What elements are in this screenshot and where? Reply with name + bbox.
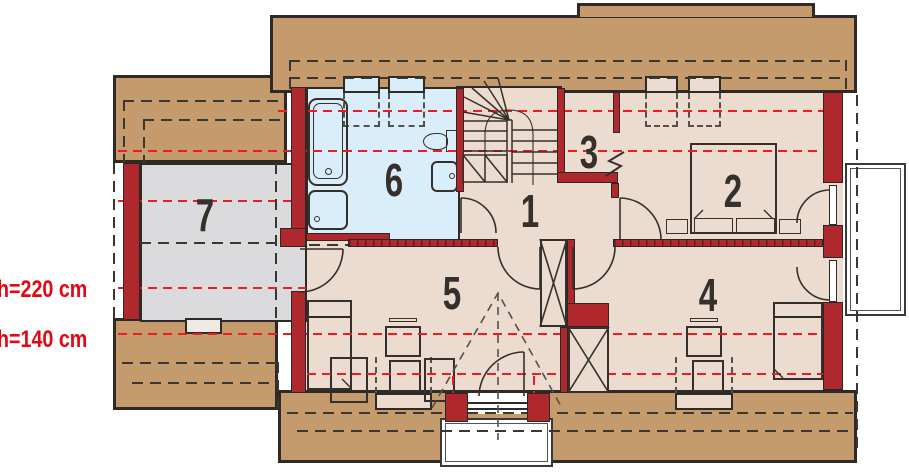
height-label-140: h=140 cm (0, 326, 87, 354)
attic-floor-plan: 7 6 1 3 2 5 4 h=220 cm h=140 cm (0, 0, 909, 472)
door-room2 (620, 198, 661, 239)
wardrobe-x-marks (540, 239, 609, 393)
door-entry (479, 352, 524, 396)
door-balcony-room4 (797, 267, 830, 300)
room-number-2: 2 (719, 168, 748, 214)
door-room5 (498, 247, 540, 289)
room-number-4: 4 (694, 272, 723, 318)
door-bathroom (461, 198, 496, 233)
room-number-1: 1 (516, 188, 545, 234)
staircase (463, 78, 557, 185)
break-symbol-room3 (606, 152, 624, 176)
door-balcony-room2 (797, 190, 830, 223)
room-number-5: 5 (438, 270, 467, 316)
room-number-3: 3 (575, 129, 604, 175)
height-label-220: h=220 cm (0, 276, 87, 304)
room-number-7: 7 (191, 192, 220, 238)
door-room4 (573, 247, 615, 289)
linework-overlay (0, 0, 909, 472)
door-room7 (300, 249, 343, 292)
room-number-6: 6 (380, 157, 409, 203)
